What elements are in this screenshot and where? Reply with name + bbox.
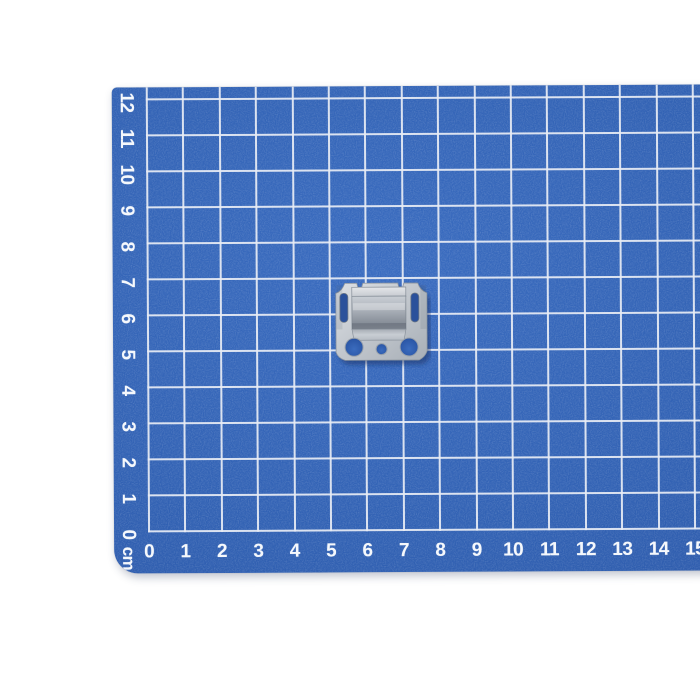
right-wing-shading bbox=[420, 285, 426, 329]
unit-label: cm bbox=[118, 547, 138, 571]
ruler-label-left: 2 bbox=[117, 457, 139, 467]
box-dark-band bbox=[352, 323, 406, 329]
right-hole bbox=[400, 338, 418, 356]
ruler-label-left: 4 bbox=[116, 385, 138, 395]
ruler-label-left: 11 bbox=[115, 129, 137, 148]
ruler-label-left: 10 bbox=[115, 164, 137, 184]
cutting-mat: 0123456789101112131415 cm 01234567891011… bbox=[112, 84, 700, 573]
ruler-label-left: 1 bbox=[117, 493, 139, 503]
ruler-label-left: 0 bbox=[117, 529, 139, 539]
ruler-label-left: 9 bbox=[115, 205, 137, 215]
ruler-label-left: 8 bbox=[116, 241, 138, 251]
metal-clip bbox=[332, 279, 431, 370]
ruler-label-left: 12 bbox=[115, 92, 137, 112]
right-slot bbox=[411, 293, 419, 322]
center-hole bbox=[376, 344, 387, 355]
product-photo: 0123456789101112131415 cm 01234567891011… bbox=[0, 0, 700, 700]
left-hole bbox=[345, 338, 363, 356]
ruler-label-left: 3 bbox=[116, 421, 138, 431]
box-bottom-flange bbox=[352, 329, 406, 340]
ruler-label-left: 5 bbox=[116, 349, 138, 359]
ruler-label-left: 6 bbox=[116, 313, 138, 323]
box-top-face bbox=[352, 287, 406, 297]
ruler-label-left: 7 bbox=[116, 277, 138, 287]
box-highlight bbox=[353, 303, 405, 310]
left-slot bbox=[340, 293, 348, 322]
